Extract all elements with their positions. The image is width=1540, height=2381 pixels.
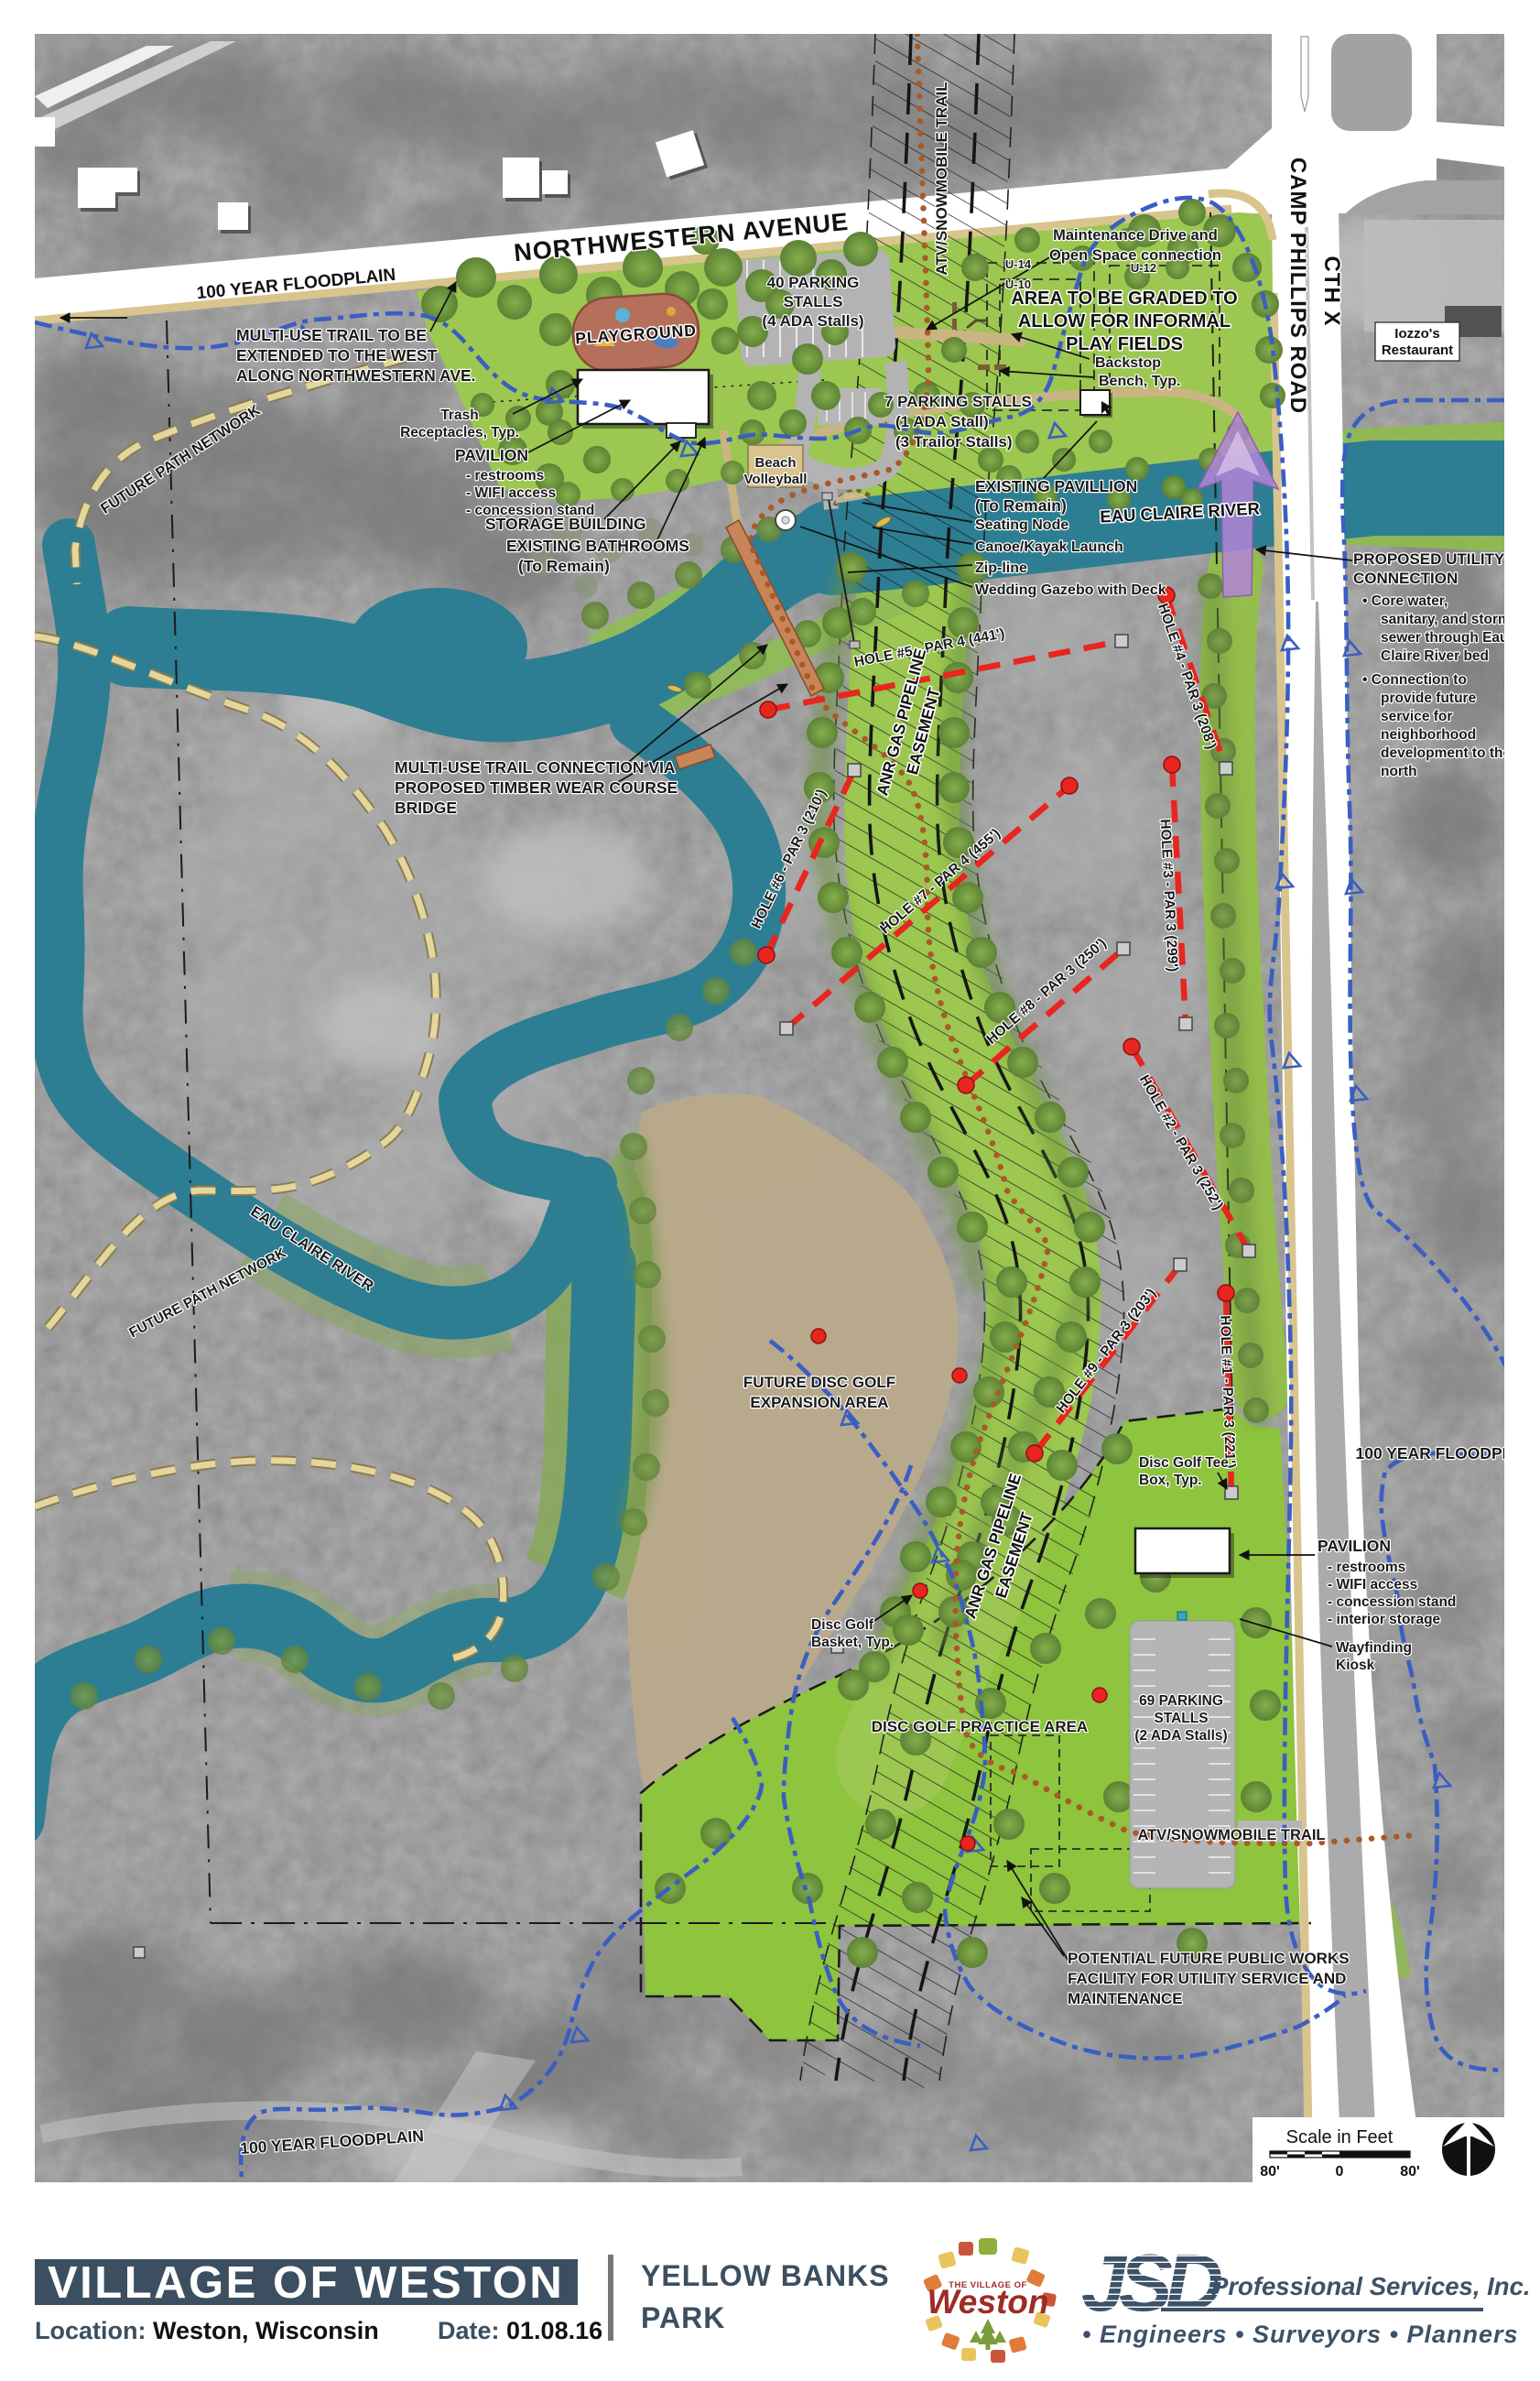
svg-text:PAVILION: PAVILION: [1318, 1537, 1391, 1555]
svg-text:- concession stand: - concession stand: [1328, 1594, 1456, 1610]
svg-text:ATV/SNOWMOBILE TRAIL: ATV/SNOWMOBILE TRAIL: [933, 82, 950, 275]
svg-text:STALLS: STALLS: [784, 293, 843, 310]
svg-text:Weston: Weston: [927, 2283, 1049, 2321]
svg-text:• Core water,: • Core water,: [1362, 593, 1448, 609]
svg-text:ALLOW FOR INFORMAL: ALLOW FOR INFORMAL: [1018, 311, 1231, 332]
svg-text:FUTURE DISC GOLF: FUTURE DISC GOLF: [743, 1374, 895, 1391]
svg-text:- WIFI access: - WIFI access: [1328, 1577, 1417, 1593]
svg-text:sewer through Eau: sewer through Eau: [1381, 630, 1509, 646]
svg-text:neighborhood: neighborhood: [1381, 727, 1476, 743]
svg-text:Wedding Gazebo with Deck: Wedding Gazebo with Deck: [975, 582, 1166, 598]
svg-text:ALONG NORTHWESTERN AVE.: ALONG NORTHWESTERN AVE.: [236, 366, 476, 385]
svg-text:Wayfinding: Wayfinding: [1336, 1640, 1412, 1656]
svg-text:STALLS: STALLS: [1154, 1711, 1208, 1726]
svg-text:EXISTING BATHROOMS: EXISTING BATHROOMS: [506, 537, 689, 555]
svg-text:PARK: PARK: [641, 2301, 725, 2334]
svg-text:Basket, Typ.: Basket, Typ.: [811, 1635, 894, 1650]
svg-text:Beach: Beach: [754, 455, 796, 471]
svg-text:CTH X: CTH X: [1319, 256, 1344, 327]
svg-text:Zip-line: Zip-line: [975, 560, 1027, 576]
svg-text:Scale in Feet: Scale in Feet: [1286, 2127, 1394, 2147]
svg-text:DISC GOLF PRACTICE AREA: DISC GOLF PRACTICE AREA: [872, 1718, 1088, 1735]
svg-text:Bench, Typ.: Bench, Typ.: [1099, 374, 1181, 389]
svg-text:Trash: Trash: [440, 408, 478, 423]
svg-text:Receptacles, Typ.: Receptacles, Typ.: [400, 425, 519, 440]
svg-text:EXTENDED TO THE WEST: EXTENDED TO THE WEST: [236, 346, 438, 364]
svg-text:(3 Trailor Stalls): (3 Trailor Stalls): [895, 433, 1013, 451]
svg-text:Seating Node: Seating Node: [975, 517, 1068, 533]
svg-text:Kiosk: Kiosk: [1336, 1658, 1375, 1673]
svg-text:Backstop: Backstop: [1095, 355, 1161, 371]
svg-text:0: 0: [1336, 2164, 1344, 2180]
svg-text:VILLAGE OF WESTON: VILLAGE OF WESTON: [48, 2258, 564, 2308]
svg-text:Disc Golf Tee: Disc Golf Tee: [1139, 1455, 1229, 1471]
svg-text:(To Remain): (To Remain): [518, 557, 610, 575]
svg-text:PROPOSED UTILITY: PROPOSED UTILITY: [1353, 550, 1505, 568]
svg-text:JSD: JSD: [1081, 2237, 1222, 2328]
svg-text:U-12: U-12: [1131, 261, 1156, 275]
svg-text:MULTI-USE TRAIL TO BE: MULTI-USE TRAIL TO BE: [236, 326, 427, 344]
svg-text:Claire River bed: Claire River bed: [1381, 648, 1489, 664]
svg-text:• Connection to: • Connection to: [1362, 672, 1467, 688]
svg-text:Maintenance Drive and: Maintenance Drive and: [1053, 227, 1218, 244]
svg-text:BRIDGE: BRIDGE: [395, 799, 457, 817]
svg-text:U-14: U-14: [1005, 257, 1032, 271]
svg-text:(4 ADA Stalls): (4 ADA Stalls): [762, 312, 863, 330]
svg-text:69 PARKING: 69 PARKING: [1139, 1693, 1223, 1709]
svg-text:Disc Golf: Disc Golf: [811, 1617, 874, 1633]
svg-text:sanitary, and storm: sanitary, and storm: [1381, 612, 1511, 627]
svg-text:Restaurant: Restaurant: [1382, 342, 1453, 358]
svg-text:Canoe/Kayak Launch: Canoe/Kayak Launch: [975, 539, 1123, 555]
svg-text:Date: 01.08.16: Date: 01.08.16: [438, 2317, 602, 2344]
svg-text:80': 80': [1400, 2164, 1420, 2180]
svg-text:MULTI-USE TRAIL CONNECTION VIA: MULTI-USE TRAIL CONNECTION VIA: [395, 758, 676, 777]
svg-text:development to the: development to the: [1381, 745, 1511, 761]
svg-text:CONNECTION: CONNECTION: [1353, 570, 1458, 587]
svg-text:STORAGE BUILDING: STORAGE BUILDING: [485, 515, 646, 533]
svg-text:provide future: provide future: [1381, 690, 1477, 706]
svg-text:EXPANSION AREA: EXPANSION AREA: [750, 1394, 888, 1411]
svg-text:AREA TO BE GRADED TO: AREA TO BE GRADED TO: [1011, 288, 1237, 309]
svg-text:service for: service for: [1381, 709, 1452, 724]
svg-text:- restrooms: - restrooms: [1328, 1560, 1405, 1575]
svg-text:100 YEAR FLOODPLAIN: 100 YEAR FLOODPLAIN: [1356, 1444, 1540, 1462]
svg-text:Volleyball: Volleyball: [744, 472, 808, 487]
svg-text:CAMP PHILLIPS ROAD: CAMP PHILLIPS ROAD: [1285, 158, 1310, 414]
svg-text:EXISTING PAVILLION: EXISTING PAVILLION: [975, 477, 1137, 495]
svg-text:ATV/SNOWMOBILE TRAIL: ATV/SNOWMOBILE TRAIL: [1137, 1827, 1325, 1843]
svg-text:FACILITY FOR UTILITY SERVICE A: FACILITY FOR UTILITY SERVICE AND: [1068, 1970, 1346, 1987]
svg-text:(1 ADA Stall): (1 ADA Stall): [895, 413, 989, 430]
svg-text:(2 ADA Stalls): (2 ADA Stalls): [1134, 1728, 1227, 1744]
svg-text:PLAY FIELDS: PLAY FIELDS: [1066, 334, 1183, 354]
svg-text:Professional Services, Inc.: Professional Services, Inc.: [1211, 2272, 1531, 2300]
svg-text:- interior storage: - interior storage: [1328, 1612, 1441, 1627]
svg-text:Iozzo's: Iozzo's: [1394, 326, 1439, 342]
svg-text:(To Remain): (To Remain): [975, 496, 1067, 515]
svg-text:7 PARKING STALLS: 7 PARKING STALLS: [884, 393, 1032, 410]
svg-text:PROPOSED TIMBER WEAR COURSE: PROPOSED TIMBER WEAR COURSE: [395, 778, 678, 797]
svg-text:40 PARKING: 40 PARKING: [767, 274, 860, 291]
svg-text:• Engineers • Surveyors • Pl: • Engineers • Surveyors • Planners: [1082, 2321, 1519, 2348]
svg-text:80': 80': [1260, 2164, 1280, 2180]
svg-text:YELLOW BANKS: YELLOW BANKS: [641, 2259, 890, 2292]
svg-text:POTENTIAL FUTURE PUBLIC WORKS: POTENTIAL FUTURE PUBLIC WORKS: [1068, 1950, 1350, 1967]
svg-text:Box, Typ.: Box, Typ.: [1139, 1473, 1202, 1488]
svg-text:- restrooms: - restrooms: [466, 468, 544, 484]
svg-text:MAINTENANCE: MAINTENANCE: [1068, 1990, 1183, 2007]
svg-text:north: north: [1381, 764, 1417, 779]
svg-text:Location: Weston, Wisconsin: Location: Weston, Wisconsin: [35, 2317, 379, 2344]
svg-text:PAVILION: PAVILION: [455, 446, 528, 464]
svg-text:- WIFI access: - WIFI access: [466, 485, 556, 501]
